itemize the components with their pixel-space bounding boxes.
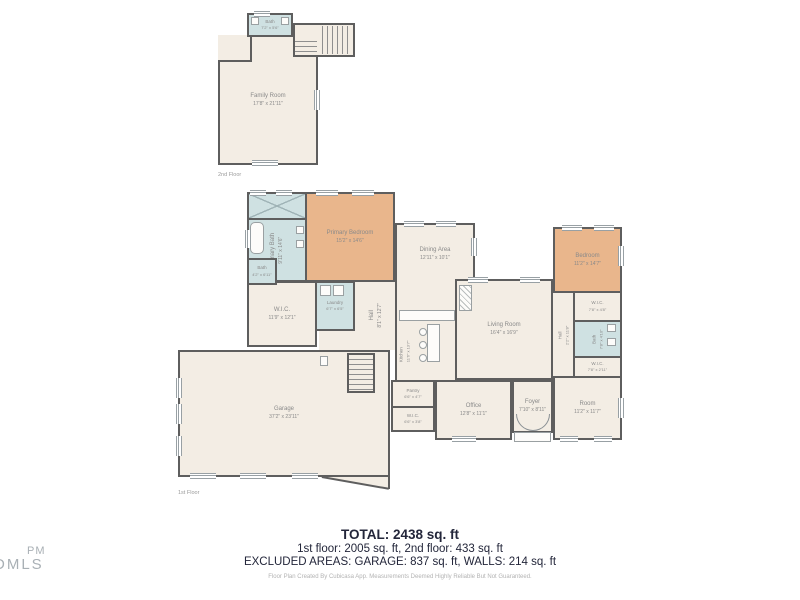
window-marker xyxy=(468,277,488,283)
window-marker xyxy=(276,190,292,196)
room-label-group: Bedroom 11'2" x 14'7" xyxy=(574,252,601,269)
stairs-2f xyxy=(318,26,352,54)
area-summary: TOTAL: 2438 sq. ft 1st floor: 2005 sq. f… xyxy=(0,527,800,580)
room-label-group: Hall 8'1" x 12'7" xyxy=(368,303,385,328)
room-dims: 7'8" x 2'11" xyxy=(588,367,607,373)
room-label-group: Office 12'8" x 11'1" xyxy=(460,402,487,419)
room-name: Bath xyxy=(261,19,279,26)
kitchen-island xyxy=(427,324,440,362)
room-name: W.I.C. xyxy=(588,361,607,368)
room-label-group: Laundry 6'7" x 6'5" xyxy=(326,300,344,313)
window-marker xyxy=(436,221,456,227)
room-wic-right-lower: W.I.C. 7'8" x 2'11" xyxy=(573,356,622,378)
mls-watermark: PM DMLS xyxy=(0,545,46,574)
room-dims: 9'11" x 14'6" xyxy=(278,233,286,268)
window-marker xyxy=(316,190,338,196)
window-marker xyxy=(452,436,476,442)
room-hall-center: Hall 8'1" x 12'7" xyxy=(355,281,397,350)
room-dims: 2'2" x 11'8" xyxy=(564,326,570,345)
room-wic-left: W.I.C. 11'9" x 12'1" xyxy=(247,281,317,347)
window-marker xyxy=(562,225,582,231)
room-label-group: Bath 4'2" x 6'11" xyxy=(252,265,271,278)
watermark-line2: DMLS xyxy=(0,557,46,574)
room-dims: 7'8" x 4'8" xyxy=(589,307,607,313)
excluded-areas-text: EXCLUDED AREAS: GARAGE: 837 sq. ft, WALL… xyxy=(0,556,800,568)
room-name: Garage xyxy=(269,405,299,414)
washer-fixture xyxy=(320,285,331,296)
primary-closet xyxy=(247,192,307,220)
sink-fixture xyxy=(296,240,304,248)
sink-fixture xyxy=(296,226,304,234)
room-name: Family Room xyxy=(250,92,285,101)
floor-areas-text: 1st floor: 2005 sq. ft, 2nd floor: 433 s… xyxy=(0,543,800,555)
toilet-fixture xyxy=(281,17,289,25)
room-dims: 8'1" x 12'7" xyxy=(377,303,385,328)
room-label-group: Pantry 6'6" x 4'7" xyxy=(404,388,422,401)
room-name: Office xyxy=(460,402,487,411)
water-heater-fixture xyxy=(320,356,328,366)
room-name: Room xyxy=(574,400,601,409)
room-label-group: W.I.C. 7'8" x 2'11" xyxy=(588,361,607,374)
stool-fixture xyxy=(419,328,427,336)
room-name: Living Room xyxy=(487,321,520,330)
room-name: Foyer xyxy=(519,398,546,407)
window-marker xyxy=(404,221,424,227)
room-name: Bath xyxy=(252,265,271,272)
window-marker xyxy=(594,225,614,231)
closet-2f xyxy=(218,35,252,62)
window-marker xyxy=(314,90,320,110)
room-label-group: Bath 7'2" x 5'6" xyxy=(261,19,279,32)
window-marker xyxy=(245,230,251,248)
room-label-group: Primary Bedroom 15'2" x 14'6" xyxy=(327,229,374,246)
room-dining-area: Dining Area 12'11" x 10'1" xyxy=(395,223,475,283)
room-name: Dining Area xyxy=(419,246,450,255)
window-marker xyxy=(250,190,266,196)
window-marker xyxy=(176,436,182,456)
room-name: W.I.C. xyxy=(589,300,607,307)
room-bath-left: Bath 4'2" x 6'11" xyxy=(247,258,277,285)
room-bedroom: Bedroom 11'2" x 14'7" xyxy=(553,227,622,293)
room-dims: 7'8" x 4'10" xyxy=(598,329,604,349)
room-label-group: W.I.C. 6'6" x 3'8" xyxy=(404,413,422,426)
dryer-fixture xyxy=(333,285,344,296)
room-dims: 37'2" x 23'11" xyxy=(269,414,299,422)
room-label-group: Foyer 7'10" x 8'11" xyxy=(519,398,546,415)
kitchen-counter xyxy=(399,310,455,321)
window-marker xyxy=(520,277,540,283)
window-marker xyxy=(292,473,318,479)
room-name: W.I.C. xyxy=(404,413,422,420)
room-office: Office 12'8" x 11'1" xyxy=(435,380,512,440)
toilet-fixture xyxy=(607,324,616,332)
room-primary-bedroom: Primary Bedroom 15'2" x 14'6" xyxy=(305,192,395,282)
room-room: Room 11'2" x 11'7" xyxy=(553,376,622,440)
room-wic-small: W.I.C. 6'6" x 3'8" xyxy=(391,406,435,432)
window-marker xyxy=(176,404,182,424)
bathtub-fixture xyxy=(250,222,264,254)
window-marker xyxy=(594,436,612,442)
sink-fixture xyxy=(251,17,259,25)
room-dims: 17'8" x 21'11" xyxy=(250,101,285,109)
room-label-group: Room 11'2" x 11'7" xyxy=(574,400,601,417)
room-dims: 6'6" x 4'7" xyxy=(404,394,422,400)
garage-right-wall xyxy=(388,477,390,489)
room-name: Bath xyxy=(591,329,598,349)
window-marker xyxy=(618,246,624,266)
room-label-group: Living Room 16'4" x 16'9" xyxy=(487,321,520,338)
window-marker xyxy=(471,238,477,256)
window-marker xyxy=(352,190,374,196)
room-pantry: Pantry 6'6" x 4'7" xyxy=(391,380,435,408)
room-dims: 11'9" x 12'1" xyxy=(268,315,295,323)
room-dims: 16'4" x 16'9" xyxy=(487,330,520,338)
room-name: Bedroom xyxy=(574,252,601,261)
room-label-group: Bath 7'8" x 4'10" xyxy=(591,329,604,349)
disclaimer-text: Floor Plan Created By Cubicasa App. Meas… xyxy=(0,574,800,580)
room-dims: 11'2" x 11'7" xyxy=(574,409,601,417)
window-marker xyxy=(560,436,578,442)
room-dims: 7'2" x 5'6" xyxy=(261,25,279,31)
window-marker xyxy=(252,160,278,166)
room-dims: 11'6" x 13'7" xyxy=(405,340,411,362)
room-label-group: Dining Area 12'11" x 10'1" xyxy=(419,246,450,263)
room-dims: 4'2" x 6'11" xyxy=(252,272,271,278)
room-dims: 6'7" x 6'5" xyxy=(326,306,344,312)
room-name: W.I.C. xyxy=(268,306,295,315)
room-dims: 15'2" x 14'6" xyxy=(327,238,374,246)
window-marker xyxy=(176,378,182,398)
window-marker xyxy=(254,11,270,17)
room-label-group: W.I.C. 7'8" x 4'8" xyxy=(589,300,607,313)
floor2-caption: 2nd Floor xyxy=(218,172,241,178)
sink-fixture xyxy=(607,338,616,346)
room-label-group: Hall 2'2" x 11'8" xyxy=(558,326,571,345)
room-label-group: Garage 37'2" x 23'11" xyxy=(269,405,299,422)
room-label-group: Family Room 17'8" x 21'11" xyxy=(250,92,285,109)
stool-fixture xyxy=(419,341,427,349)
room-dims: 6'6" x 3'8" xyxy=(404,419,422,425)
window-marker xyxy=(190,473,216,479)
stairs-2f-return xyxy=(295,37,317,56)
floor1-caption: 1st Floor xyxy=(178,490,199,496)
room-name: Laundry xyxy=(326,300,344,307)
room-name: Pantry xyxy=(404,388,422,395)
window-marker xyxy=(618,398,624,418)
room-label-group: Kitchen 11'6" x 13'7" xyxy=(399,340,412,362)
stairs-1f xyxy=(347,353,375,393)
room-name: Hall xyxy=(368,303,377,328)
room-dims: 12'11" x 10'1" xyxy=(419,255,450,263)
room-hall-right: Hall 2'2" x 11'8" xyxy=(553,291,575,380)
room-dims: 12'8" x 11'1" xyxy=(460,411,487,419)
room-dims: 11'2" x 14'7" xyxy=(574,261,601,269)
room-wic-right-upper: W.I.C. 7'8" x 4'8" xyxy=(573,291,622,322)
stool-fixture xyxy=(419,354,427,362)
porch-step xyxy=(514,432,551,442)
total-area-text: TOTAL: 2438 sq. ft xyxy=(0,527,800,542)
cabinet-fixture xyxy=(459,285,472,311)
room-kitchen-label: Kitchen 11'6" x 13'7" xyxy=(397,322,413,380)
room-name: Primary Bedroom xyxy=(327,229,374,238)
floor-plan: Family Room 17'8" x 21'11" Bath 7'2" x 5… xyxy=(0,0,800,600)
window-marker xyxy=(240,473,266,479)
room-label-group: W.I.C. 11'9" x 12'1" xyxy=(268,306,295,323)
